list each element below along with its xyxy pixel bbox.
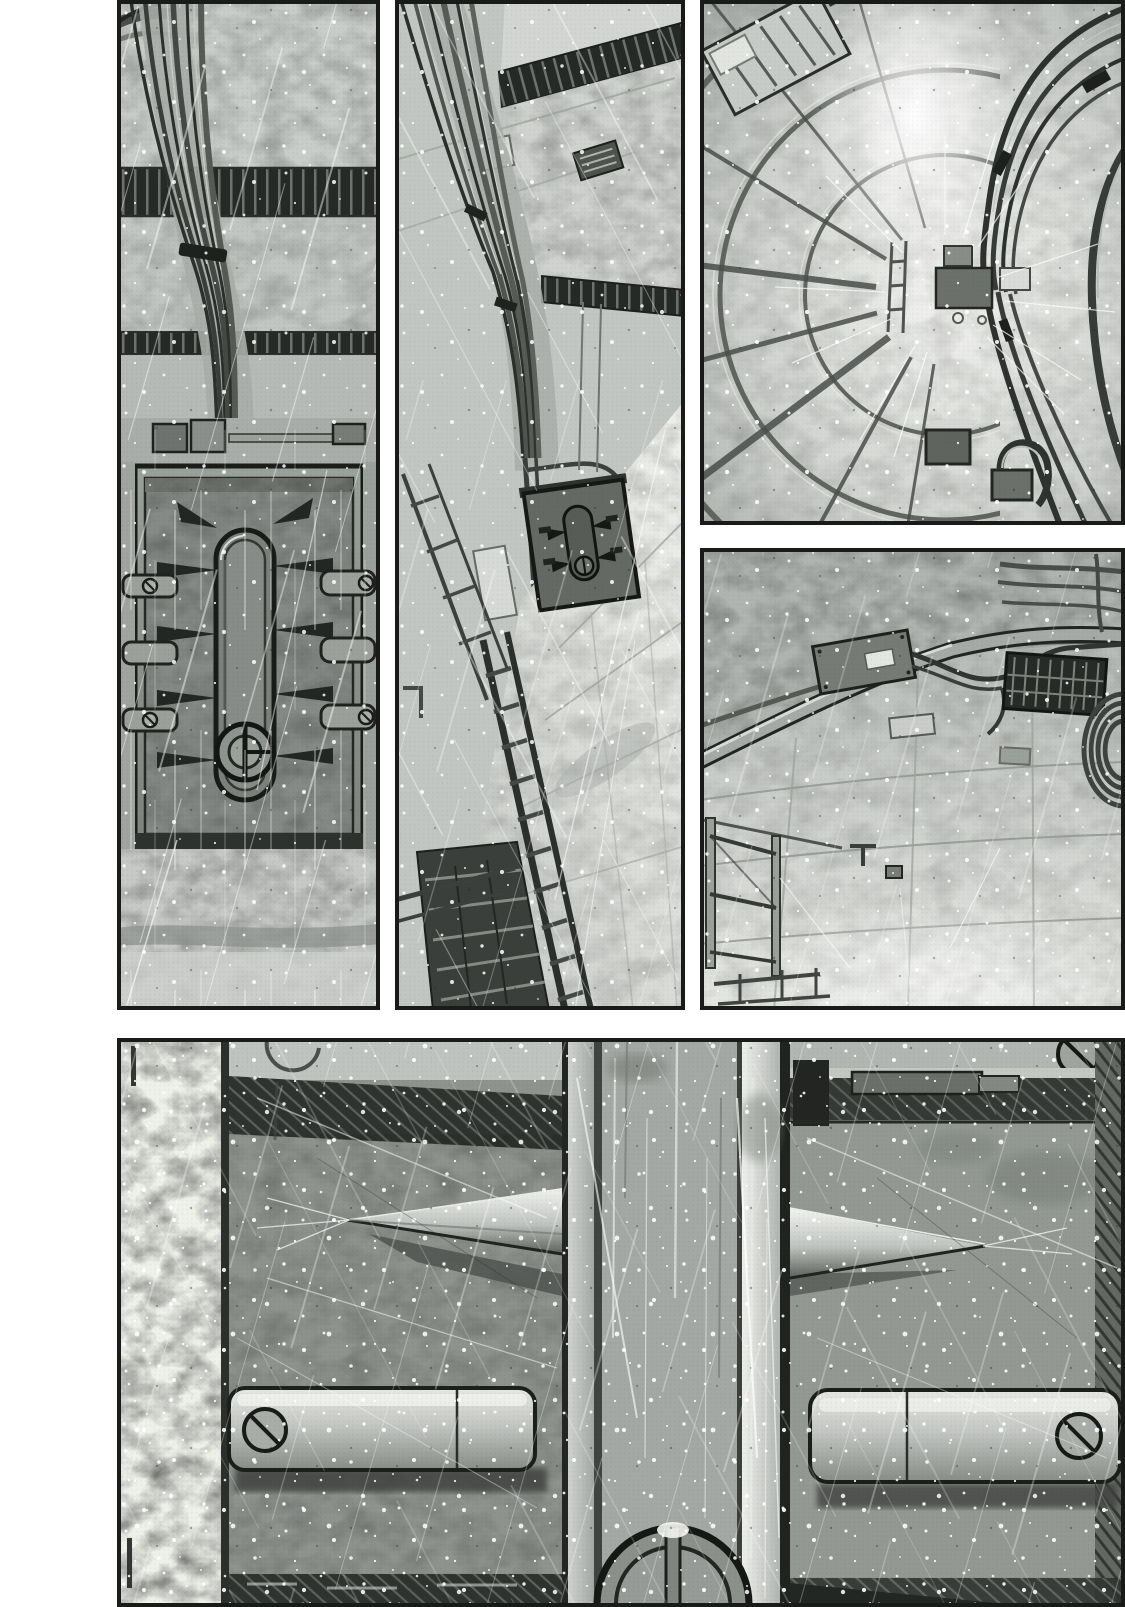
panel-2-corridor (395, 0, 685, 1010)
panel-1-hatch-door (117, 0, 380, 1010)
panel-2-art (395, 0, 685, 1010)
panel-3-tunnel-shaft (700, 0, 1125, 525)
speckle-overlay (700, 0, 1125, 525)
panel-3-art (700, 0, 1125, 525)
panel-5-art (117, 1038, 1125, 1607)
panel-4-art (700, 548, 1125, 1010)
manga-page (0, 0, 1125, 1607)
streak-overlay (117, 0, 380, 1010)
streak-overlay (700, 548, 1125, 1010)
streak-overlay (117, 1038, 1125, 1607)
panel-5-lock-mechanism (117, 1038, 1125, 1607)
panel-4-compartment (700, 548, 1125, 1010)
panel-1-art (117, 0, 380, 1010)
streak-overlay (395, 0, 685, 1010)
